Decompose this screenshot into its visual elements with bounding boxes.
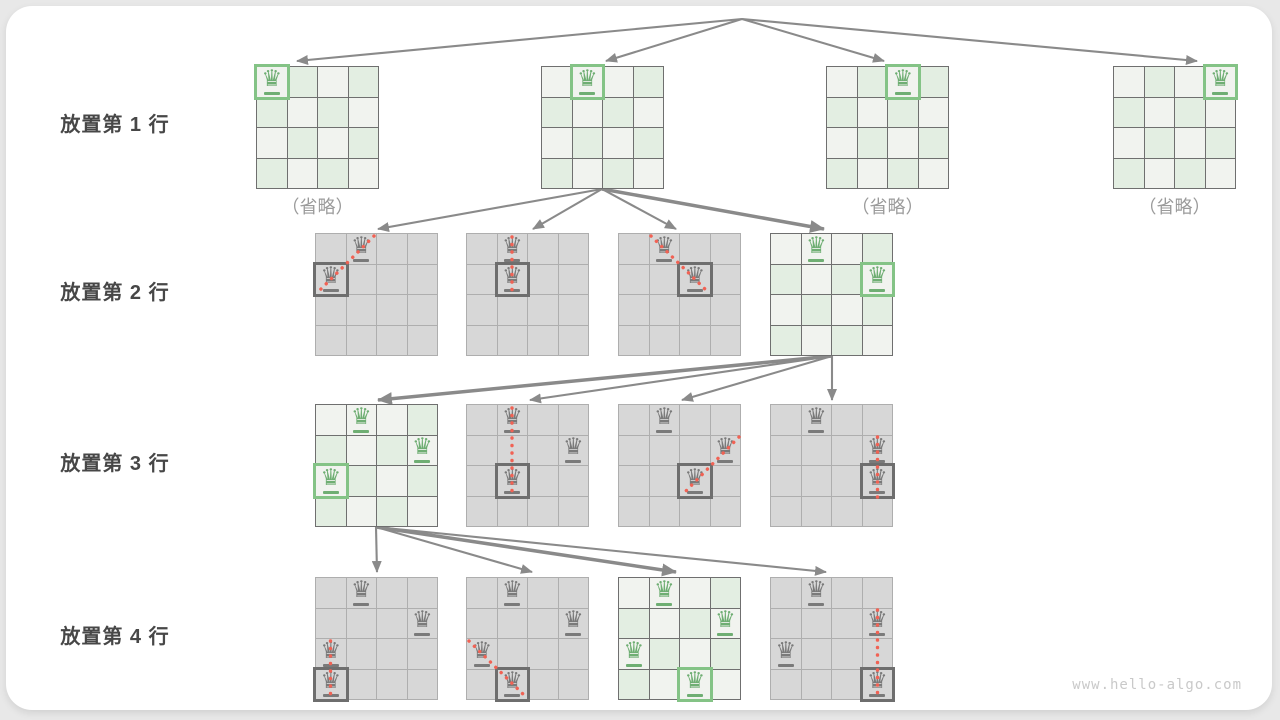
board-r3b1: ♛♛♛ — [315, 404, 438, 527]
queen-base — [656, 430, 672, 433]
board-cell — [573, 159, 603, 189]
board-cell — [863, 639, 893, 669]
queen-base — [808, 259, 824, 262]
board-cell — [316, 436, 346, 466]
board-cell — [559, 405, 589, 435]
board-cell — [802, 265, 832, 295]
board-cell — [377, 609, 407, 639]
board-cell — [888, 98, 918, 128]
board-cell — [1175, 67, 1205, 97]
board-cell — [863, 578, 893, 608]
board-cell — [1114, 98, 1144, 128]
board-cell — [377, 578, 407, 608]
board-r2b1: ♛♛ — [315, 233, 438, 356]
board-cell: ♛ — [888, 67, 918, 97]
board-cell — [408, 234, 438, 264]
queen-glyph: ♛ — [502, 580, 523, 601]
board-cell — [377, 326, 407, 356]
board-cell: ♛ — [498, 405, 528, 435]
board-cell: ♛ — [498, 234, 528, 264]
board-cell — [832, 436, 862, 466]
board-cell — [316, 326, 346, 356]
board-cell — [542, 128, 572, 158]
board-r4b4: ♛♛♛♛ — [770, 577, 893, 700]
board-cell — [408, 405, 438, 435]
board-cell: ♛ — [316, 639, 346, 669]
queen-glyph: ♛ — [471, 641, 492, 662]
queen-glyph: ♛ — [563, 610, 584, 631]
board-cell — [347, 295, 377, 325]
board-cell: ♛ — [680, 265, 710, 295]
row-label-3: 放置第 3 行 — [40, 451, 190, 477]
board-cell — [347, 670, 377, 700]
board-r1b1: ♛ — [256, 66, 379, 189]
queen-base — [474, 664, 490, 667]
board-cell: ♛ — [650, 578, 680, 608]
board-cell — [619, 436, 649, 466]
board-cell — [863, 405, 893, 435]
board-cell — [528, 234, 558, 264]
board-cell: ♛ — [408, 436, 438, 466]
board-cell: ♛ — [467, 639, 497, 669]
board-cell — [771, 326, 801, 356]
board-cell — [1114, 128, 1144, 158]
board-cell — [408, 670, 438, 700]
board-cell — [528, 466, 558, 496]
board-cell — [711, 670, 741, 700]
board-cell — [347, 497, 377, 527]
board-cell — [408, 578, 438, 608]
board-cell — [619, 295, 649, 325]
board-r3b3: ♛♛♛ — [618, 404, 741, 527]
board-cell — [650, 326, 680, 356]
omitted-caption: （省略） — [282, 196, 354, 218]
board-cell — [257, 159, 287, 189]
board-cell — [619, 497, 649, 527]
board-cell — [573, 98, 603, 128]
board-cell — [680, 295, 710, 325]
board-cell — [559, 295, 589, 325]
board-cell — [559, 265, 589, 295]
board-cell — [680, 639, 710, 669]
board-cell: ♛ — [619, 639, 649, 669]
board-cell — [650, 609, 680, 639]
board-cell: ♛ — [559, 609, 589, 639]
board-cell: ♛ — [650, 405, 680, 435]
placed-queen-highlight — [677, 667, 713, 703]
board-cell — [1206, 128, 1236, 158]
board-cell — [832, 497, 862, 527]
board-cell — [650, 436, 680, 466]
board-r1b3: ♛ — [826, 66, 949, 189]
board-cell — [257, 128, 287, 158]
board-cell — [559, 578, 589, 608]
board-cell — [680, 326, 710, 356]
board-cell — [802, 609, 832, 639]
board-cell — [316, 578, 346, 608]
placed-queen-highlight — [885, 64, 921, 100]
queen-glyph: ♛ — [654, 580, 675, 601]
board-cell: ♛ — [711, 436, 741, 466]
row-label-4: 放置第 4 行 — [40, 624, 190, 650]
board-cell: ♛ — [863, 466, 893, 496]
queen-icon: ♛ — [408, 436, 438, 466]
queen-base — [869, 633, 885, 636]
queen-icon: ♛ — [498, 405, 528, 435]
board-cell — [347, 609, 377, 639]
queen-glyph: ♛ — [867, 437, 888, 458]
board-cell — [498, 326, 528, 356]
board-cell — [603, 159, 633, 189]
board-cell — [771, 609, 801, 639]
board-cell — [528, 497, 558, 527]
board-cell — [498, 609, 528, 639]
board-cell — [832, 295, 862, 325]
board-cell — [467, 295, 497, 325]
board-cell — [559, 639, 589, 669]
board-cell — [888, 128, 918, 158]
board-cell: ♛ — [316, 265, 346, 295]
board-cell — [680, 436, 710, 466]
backtracking-tree-diagram: 放置第 1 行 放置第 2 行 放置第 3 行 放置第 4 行 ♛（省略）♛♛（… — [0, 0, 1280, 720]
board-cell — [771, 405, 801, 435]
board-cell — [347, 639, 377, 669]
board-cell — [467, 670, 497, 700]
board-cell — [863, 326, 893, 356]
board-r4b2: ♛♛♛♛ — [466, 577, 589, 700]
board-cell — [802, 436, 832, 466]
queen-base — [717, 460, 733, 463]
queen-base — [656, 259, 672, 262]
board-cell — [650, 639, 680, 669]
queen-glyph: ♛ — [775, 641, 796, 662]
board-cell — [802, 497, 832, 527]
board-cell — [377, 497, 407, 527]
board-cell — [711, 497, 741, 527]
board-cell — [316, 497, 346, 527]
board-cell — [288, 159, 318, 189]
queen-base — [717, 633, 733, 636]
row-label-2: 放置第 2 行 — [40, 280, 190, 306]
board-cell — [498, 436, 528, 466]
row-label-1: 放置第 1 行 — [40, 112, 190, 138]
board-cell — [619, 405, 649, 435]
board-cell — [680, 578, 710, 608]
board-cell — [863, 234, 893, 264]
queen-icon: ♛ — [711, 436, 741, 466]
queen-base — [808, 603, 824, 606]
queen-icon: ♛ — [559, 609, 589, 639]
board-cell — [619, 609, 649, 639]
board-cell — [711, 405, 741, 435]
board-cell — [316, 295, 346, 325]
board-cell — [919, 128, 949, 158]
board-cell — [408, 497, 438, 527]
board-cell — [603, 98, 633, 128]
board-cell — [498, 497, 528, 527]
board-cell — [1145, 98, 1175, 128]
board-cell — [528, 326, 558, 356]
placed-queen-highlight — [313, 262, 349, 298]
board-cell — [827, 67, 857, 97]
board-cell: ♛ — [316, 466, 346, 496]
queen-glyph: ♛ — [715, 437, 736, 458]
queen-glyph: ♛ — [412, 610, 433, 631]
queen-icon: ♛ — [347, 234, 377, 264]
board-cell — [680, 497, 710, 527]
board-r4b1: ♛♛♛♛ — [315, 577, 438, 700]
board-cell: ♛ — [573, 67, 603, 97]
placed-queen-highlight — [254, 64, 290, 100]
board-cell — [619, 578, 649, 608]
board-cell — [771, 670, 801, 700]
board-cell — [559, 670, 589, 700]
board-cell — [542, 159, 572, 189]
board-r2b3: ♛♛ — [618, 233, 741, 356]
board-cell — [288, 128, 318, 158]
board-cell — [832, 234, 862, 264]
queen-base — [353, 603, 369, 606]
board-cell — [467, 405, 497, 435]
board-cell — [498, 295, 528, 325]
queen-glyph: ♛ — [351, 236, 372, 257]
queen-icon: ♛ — [408, 609, 438, 639]
board-cell — [650, 497, 680, 527]
board-cell — [832, 405, 862, 435]
board-cell — [1175, 98, 1205, 128]
board-cell: ♛ — [498, 265, 528, 295]
board-cell — [863, 497, 893, 527]
board-cell — [827, 98, 857, 128]
queen-icon: ♛ — [863, 436, 893, 466]
board-cell — [619, 234, 649, 264]
queen-glyph: ♛ — [867, 610, 888, 631]
board-cell — [863, 295, 893, 325]
queen-icon: ♛ — [650, 405, 680, 435]
board-cell: ♛ — [347, 578, 377, 608]
queen-icon: ♛ — [863, 609, 893, 639]
board-cell — [1145, 128, 1175, 158]
queen-glyph: ♛ — [654, 407, 675, 428]
board-cell — [711, 466, 741, 496]
board-cell — [919, 98, 949, 128]
board-cell — [528, 639, 558, 669]
placed-queen-highlight — [860, 463, 896, 499]
board-cell — [467, 436, 497, 466]
queen-glyph: ♛ — [502, 236, 523, 257]
board-cell — [802, 639, 832, 669]
board-cell — [318, 67, 348, 97]
board-cell — [650, 670, 680, 700]
board-cell — [318, 98, 348, 128]
board-cell — [349, 67, 379, 97]
board-cell — [634, 67, 664, 97]
board-cell — [288, 98, 318, 128]
board-r1b4: ♛ — [1113, 66, 1236, 189]
board-cell — [634, 98, 664, 128]
board-r1b2: ♛ — [541, 66, 664, 189]
board-cell — [711, 578, 741, 608]
board-cell — [634, 159, 664, 189]
board-cell — [542, 67, 572, 97]
board-cell — [858, 67, 888, 97]
queen-icon: ♛ — [771, 639, 801, 669]
queen-glyph: ♛ — [351, 580, 372, 601]
board-cell — [650, 466, 680, 496]
board-cell — [377, 234, 407, 264]
board-cell — [1175, 159, 1205, 189]
board-cell: ♛ — [257, 67, 287, 97]
board-cell — [711, 326, 741, 356]
queen-glyph: ♛ — [806, 236, 827, 257]
queen-icon: ♛ — [802, 234, 832, 264]
placed-queen-highlight — [495, 262, 531, 298]
board-cell — [603, 67, 633, 97]
board-r3b2: ♛♛♛ — [466, 404, 589, 527]
board-cell — [498, 639, 528, 669]
board-cell — [408, 326, 438, 356]
board-cell — [919, 159, 949, 189]
queen-base — [504, 430, 520, 433]
board-cell — [1206, 159, 1236, 189]
placed-queen-highlight — [860, 667, 896, 703]
queen-base — [565, 633, 581, 636]
board-cell — [347, 466, 377, 496]
placed-queen-highlight — [495, 667, 531, 703]
board-cell — [257, 98, 287, 128]
queen-icon: ♛ — [711, 609, 741, 639]
board-cell — [1114, 159, 1144, 189]
board-cell — [771, 234, 801, 264]
omitted-caption: （省略） — [1139, 196, 1211, 218]
queen-icon: ♛ — [559, 436, 589, 466]
board-cell — [711, 295, 741, 325]
queen-glyph: ♛ — [412, 437, 433, 458]
board-cell — [528, 578, 558, 608]
board-cell — [467, 497, 497, 527]
board-cell — [528, 265, 558, 295]
board-cell — [827, 128, 857, 158]
placed-queen-highlight — [677, 463, 713, 499]
board-cell — [802, 466, 832, 496]
board-cell — [827, 159, 857, 189]
board-cell — [771, 265, 801, 295]
board-cell — [528, 670, 558, 700]
board-cell — [802, 295, 832, 325]
queen-base — [353, 259, 369, 262]
board-cell: ♛ — [802, 234, 832, 264]
board-cell — [316, 234, 346, 264]
board-cell — [377, 295, 407, 325]
board-cell — [377, 405, 407, 435]
board-cell — [467, 326, 497, 356]
board-cell: ♛ — [498, 578, 528, 608]
board-cell: ♛ — [802, 578, 832, 608]
board-r2b2: ♛♛ — [466, 233, 589, 356]
board-cell — [619, 670, 649, 700]
board-cell: ♛ — [863, 670, 893, 700]
queen-icon: ♛ — [650, 234, 680, 264]
queen-base — [414, 460, 430, 463]
queen-icon: ♛ — [347, 578, 377, 608]
board-cell — [1145, 159, 1175, 189]
board-cell — [559, 466, 589, 496]
queen-glyph: ♛ — [806, 580, 827, 601]
queen-icon: ♛ — [802, 578, 832, 608]
board-cell: ♛ — [863, 436, 893, 466]
board-cell — [316, 609, 346, 639]
board-cell — [603, 128, 633, 158]
board-r2b4: ♛♛ — [770, 233, 893, 356]
board-cell: ♛ — [711, 609, 741, 639]
board-cell — [377, 265, 407, 295]
board-cell — [832, 670, 862, 700]
queen-icon: ♛ — [498, 234, 528, 264]
board-cell — [467, 578, 497, 608]
board-cell — [542, 98, 572, 128]
board-cell — [467, 265, 497, 295]
queen-glyph: ♛ — [715, 610, 736, 631]
queen-icon: ♛ — [347, 405, 377, 435]
board-cell — [318, 159, 348, 189]
board-r3b4: ♛♛♛ — [770, 404, 893, 527]
board-cell — [771, 466, 801, 496]
board-cell — [408, 265, 438, 295]
board-cell — [832, 639, 862, 669]
board-cell: ♛ — [559, 436, 589, 466]
board-cell: ♛ — [863, 265, 893, 295]
board-cell — [771, 578, 801, 608]
board-cell — [528, 609, 558, 639]
board-cell — [408, 639, 438, 669]
placed-queen-highlight — [313, 667, 349, 703]
board-cell: ♛ — [408, 609, 438, 639]
queen-glyph: ♛ — [320, 641, 341, 662]
board-cell — [1145, 67, 1175, 97]
board-cell: ♛ — [650, 234, 680, 264]
placed-queen-highlight — [677, 262, 713, 298]
board-cell — [377, 436, 407, 466]
board-cell — [832, 578, 862, 608]
board-cell — [349, 159, 379, 189]
board-cell — [1114, 67, 1144, 97]
board-cell: ♛ — [347, 234, 377, 264]
board-cell — [349, 128, 379, 158]
board-cell — [559, 326, 589, 356]
board-cell — [771, 497, 801, 527]
board-cell — [559, 234, 589, 264]
queen-glyph: ♛ — [654, 236, 675, 257]
queen-base — [808, 430, 824, 433]
board-cell — [771, 436, 801, 466]
queen-base — [656, 603, 672, 606]
queen-glyph: ♛ — [502, 407, 523, 428]
board-cell: ♛ — [498, 466, 528, 496]
board-cell — [832, 265, 862, 295]
board-cell — [528, 405, 558, 435]
board-cell — [680, 234, 710, 264]
board-cell — [467, 234, 497, 264]
queen-icon: ♛ — [650, 578, 680, 608]
placed-queen-highlight — [570, 64, 606, 100]
queen-base — [565, 460, 581, 463]
board-cell: ♛ — [347, 405, 377, 435]
board-cell — [711, 265, 741, 295]
board-cell: ♛ — [771, 639, 801, 669]
board-cell — [832, 466, 862, 496]
board-cell — [467, 466, 497, 496]
board-cell — [802, 326, 832, 356]
